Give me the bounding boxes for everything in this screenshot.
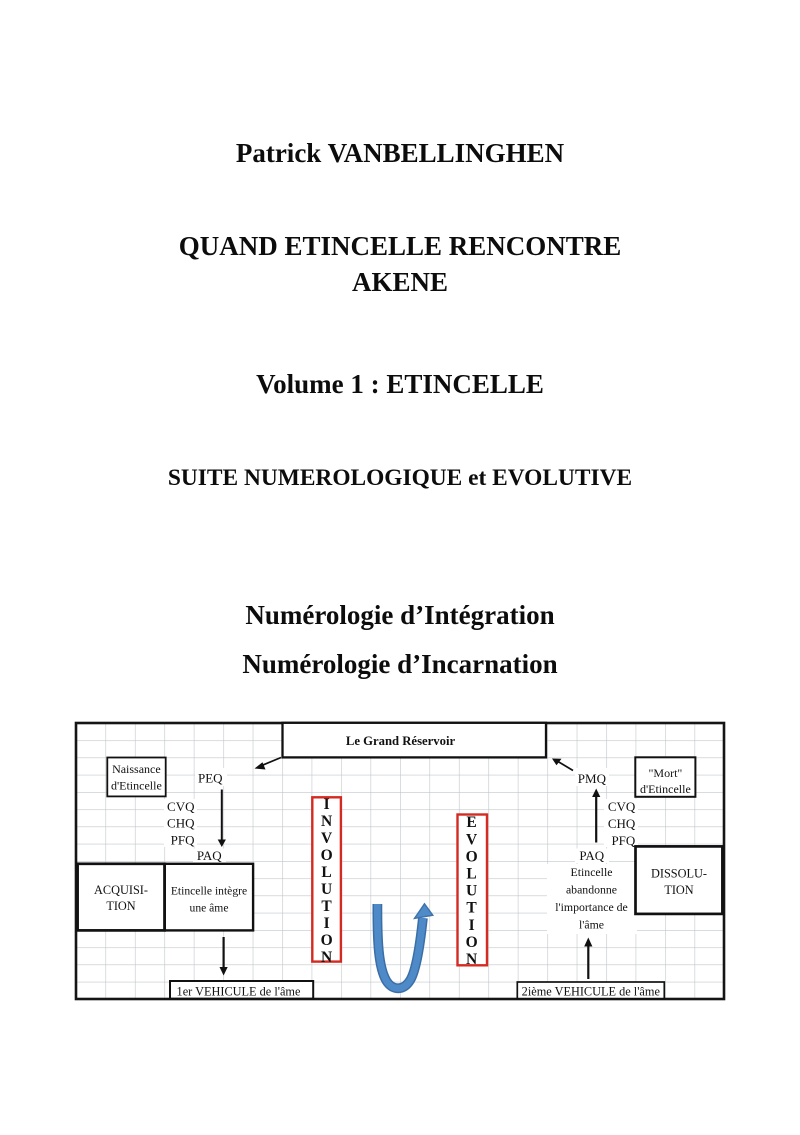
svg-text:N: N <box>321 949 332 966</box>
svg-text:I: I <box>469 917 475 934</box>
svg-text:"Mort": "Mort" <box>649 766 683 780</box>
svg-text:N: N <box>466 951 477 968</box>
svg-text:CHQ: CHQ <box>167 816 195 831</box>
svg-text:PMQ: PMQ <box>578 771 607 786</box>
svg-text:U: U <box>321 881 332 898</box>
svg-text:d'Etincelle: d'Etincelle <box>640 782 691 796</box>
svg-text:O: O <box>321 932 333 949</box>
svg-text:T: T <box>321 898 332 915</box>
svg-text:N: N <box>321 813 332 830</box>
svg-text:L: L <box>321 864 331 881</box>
svg-text:U: U <box>466 883 477 900</box>
svg-text:I: I <box>324 796 330 813</box>
svg-text:E: E <box>466 814 476 831</box>
svg-text:d'Etincelle: d'Etincelle <box>111 779 162 793</box>
svg-text:PFQ: PFQ <box>171 832 195 847</box>
svg-text:une âme: une âme <box>190 901 229 914</box>
svg-text:I: I <box>324 915 330 932</box>
svg-text:CVQ: CVQ <box>167 799 195 814</box>
svg-text:DISSOLU-: DISSOLU- <box>651 867 707 881</box>
svg-text:PEQ: PEQ <box>198 770 223 785</box>
svg-text:O: O <box>321 847 333 864</box>
svg-text:O: O <box>466 934 478 951</box>
svg-text:Le Grand Réservoir: Le Grand Réservoir <box>346 734 456 748</box>
svg-text:V: V <box>321 830 333 847</box>
svg-text:O: O <box>466 848 478 865</box>
svg-text:PAQ: PAQ <box>197 848 222 863</box>
svg-text:CHQ: CHQ <box>608 816 636 831</box>
svg-text:T: T <box>466 900 477 917</box>
svg-text:l'âme: l'âme <box>579 917 604 931</box>
svg-text:PFQ: PFQ <box>611 833 635 848</box>
svg-text:Etincelle intègre: Etincelle intègre <box>171 884 247 897</box>
svg-text:TION: TION <box>106 899 135 913</box>
svg-text:l'importance de: l'importance de <box>555 900 628 914</box>
svg-text:TION: TION <box>664 883 693 897</box>
svg-text:L: L <box>466 866 476 883</box>
svg-text:Etincelle: Etincelle <box>571 865 613 879</box>
svg-text:ACQUISI-: ACQUISI- <box>94 883 148 897</box>
svg-text:abandonne: abandonne <box>566 883 617 897</box>
svg-text:PAQ: PAQ <box>579 848 604 863</box>
svg-text:1er VEHICULE de l'âme: 1er VEHICULE de l'âme <box>177 984 301 998</box>
svg-text:2ième VEHICULE de l'âme: 2ième VEHICULE de l'âme <box>522 985 661 999</box>
svg-text:CVQ: CVQ <box>608 799 636 814</box>
svg-text:Naissance: Naissance <box>112 762 161 776</box>
svg-text:V: V <box>466 831 478 848</box>
